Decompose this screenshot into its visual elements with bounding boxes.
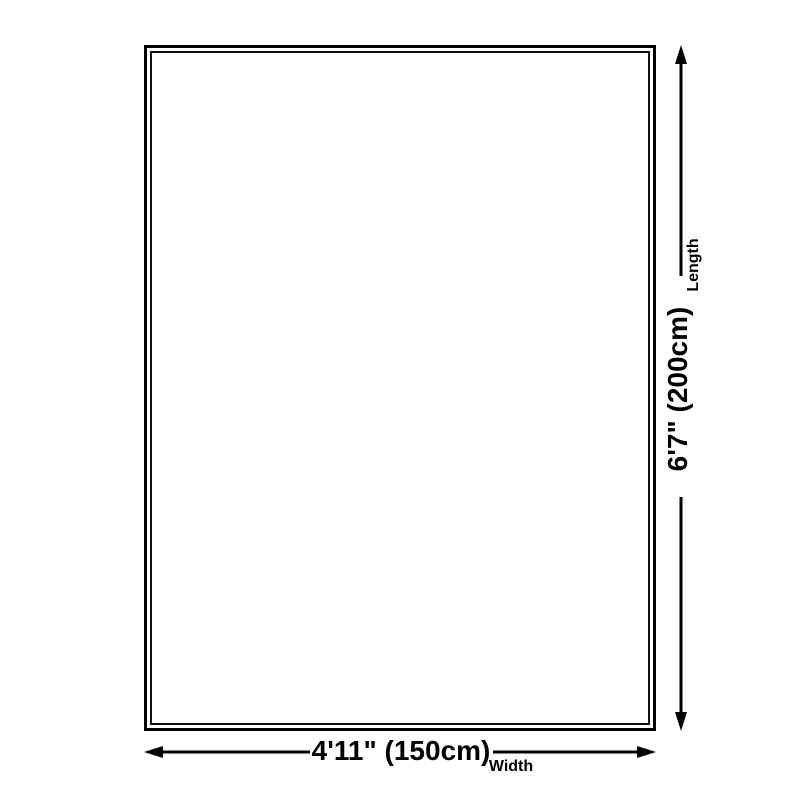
width-value-label: 4'11" (150cm) bbox=[312, 737, 491, 765]
arrow-down-icon bbox=[675, 712, 687, 731]
rug-size-diagram: 6'7" (200cm) Length 4'11" (150cm) Width bbox=[0, 0, 800, 800]
length-label: Length bbox=[686, 238, 702, 291]
width-label: Width bbox=[489, 759, 533, 775]
length-value-label: 6'7" (200cm) bbox=[664, 307, 692, 472]
arrow-right-icon bbox=[637, 746, 656, 758]
